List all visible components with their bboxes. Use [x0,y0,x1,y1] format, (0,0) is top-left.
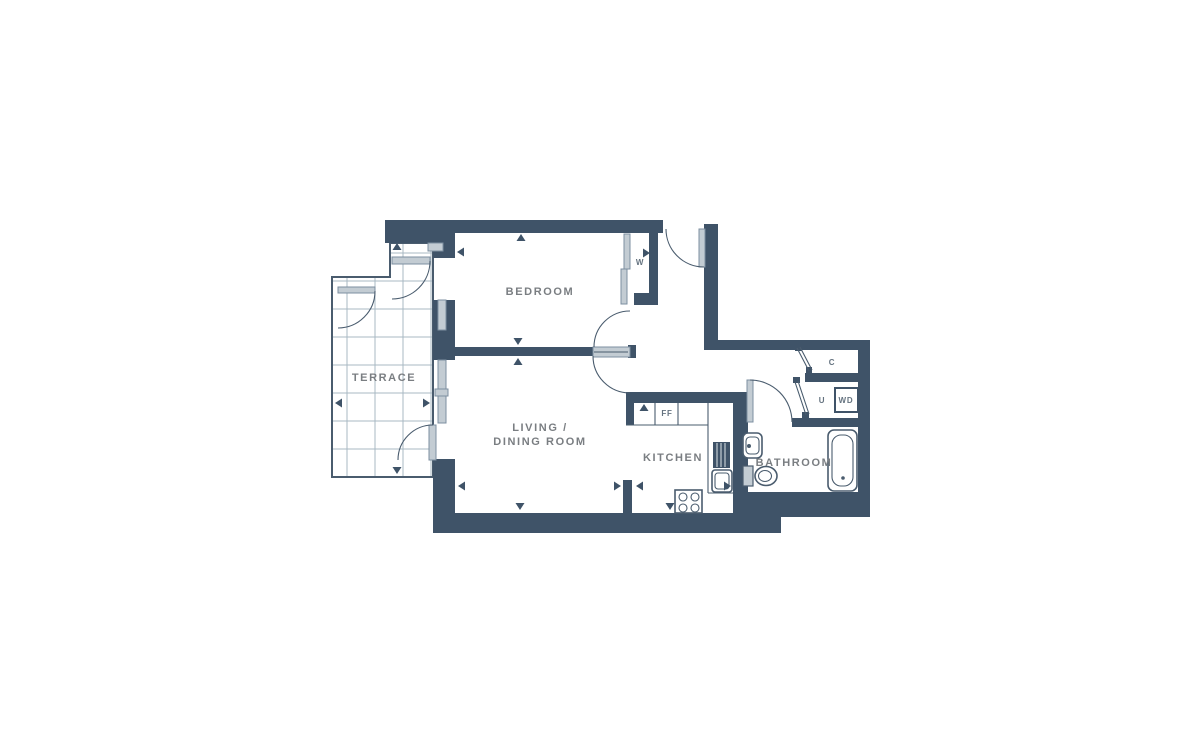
terrace-tile-grid [332,243,433,477]
fridge-freezer-label: FF [661,409,672,418]
tick-bedroom-top [517,234,526,241]
living-label-line2: DINING ROOM [493,436,586,448]
bedroom-door-arc [594,311,630,347]
utility-door-angled [795,381,809,415]
wall-wardrobe-block [634,293,658,305]
wall-right-exterior [858,350,870,517]
tick-kitchen-left [636,482,643,491]
bathroom-door-leaf [747,380,753,422]
door-hinge-block-utility-top [793,377,800,383]
wall-bedroom-top [455,220,663,233]
living-door-arc [593,356,630,393]
entrance-door-leaf [699,229,705,267]
window-left-upper [438,300,446,330]
wall-bedroom-living-divider [445,347,595,356]
wardrobe-label: W [636,258,644,267]
wall-wardrobe-right [649,233,658,293]
living-label-line1: LIVING / [512,422,568,434]
bathroom-door-arc [750,380,792,422]
wall-bottom-main [433,513,781,533]
tick-bedroom-left [457,248,464,257]
terrace-label: TERRACE [352,372,416,384]
tick-living-bottom [516,503,525,510]
window-mullion [435,389,448,396]
wall-top-left-block [385,220,455,243]
wall-bottom-right [733,492,870,517]
cupboard-label: C [829,358,836,367]
wardrobe-sliding-door-1 [624,234,630,269]
wall-hall-east [704,224,718,350]
tick-living-left [458,482,465,491]
wall-cupboard-divider [805,373,858,382]
wall-left-lower [433,459,455,517]
floor-plan: TERRACE BEDROOM LIVING / DINING ROOM KIT… [0,0,1200,742]
tick-divider-top [514,338,523,345]
kitchen-label: KITCHEN [643,452,703,464]
wall-kitchen-top [626,392,748,403]
washer-dryer-label: WD [839,396,854,405]
wall-kitchen-stub-top [626,403,634,425]
tick-living-right [614,482,621,491]
tick-divider-bottom [514,358,523,365]
bedroom-label: BEDROOM [506,286,575,298]
window-sill-top-left [428,243,443,251]
bathtub-drain [841,476,845,480]
utility-label: U [819,396,826,405]
wardrobe-sliding-door-2 [621,269,627,304]
terrace-door-leaf-upper [392,257,430,264]
tick-kitchen-bottom [666,503,675,510]
terrace-door-leaf-lower [429,425,436,460]
tick-kitchen-counter [640,404,649,411]
entrance-door-arc [666,229,704,267]
basin-tap [747,444,751,448]
tick-wardrobe [643,249,650,258]
floor-plan-page: TERRACE BEDROOM LIVING / DINING ROOM KIT… [0,0,1200,742]
toilet-cistern [743,466,753,486]
wall-kitchen-stub-bottom [623,480,632,513]
terrace-area [332,243,433,477]
wall-right-wing-top [718,340,870,350]
terrace-door-leaf-left [338,287,375,293]
bathroom-label: BATHROOM [756,457,833,469]
wall-bathroom-top [792,418,858,427]
